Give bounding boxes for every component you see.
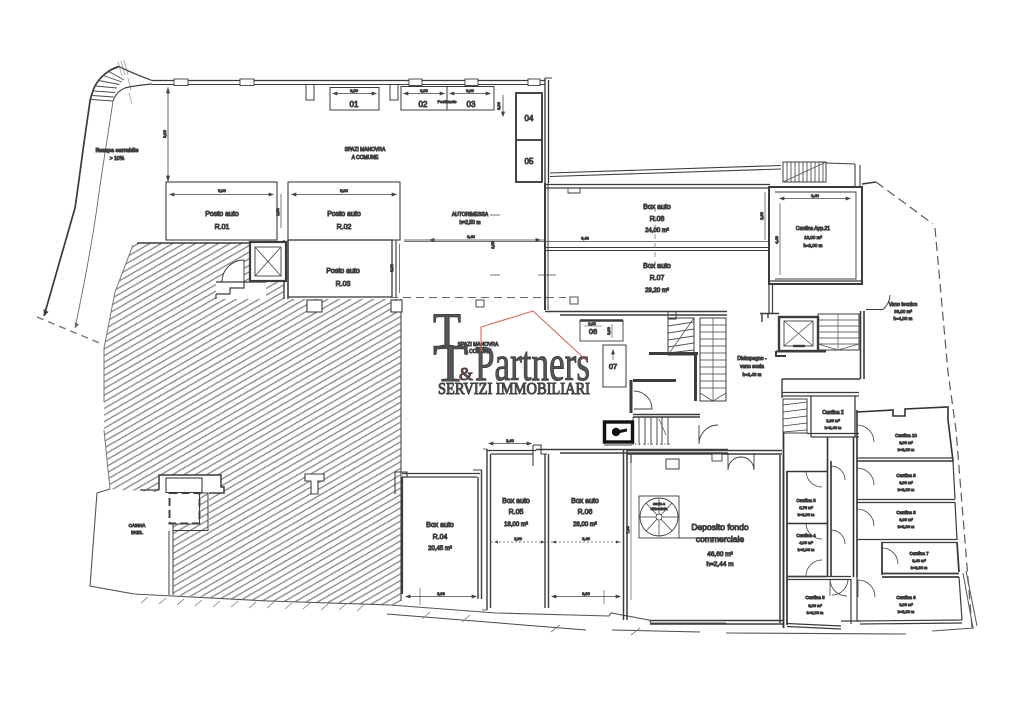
svg-text:6,40: 6,40 [581, 236, 590, 241]
svg-text:Rampa carrabile: Rampa carrabile [96, 148, 139, 154]
svg-text:R.02: R.02 [337, 224, 352, 231]
svg-text:Box auto: Box auto [643, 204, 671, 211]
svg-text:6,40: 6,40 [467, 234, 476, 239]
svg-text:h=2,40 m: h=2,40 m [825, 425, 842, 430]
svg-text:R.04: R.04 [433, 534, 448, 541]
svg-text:6,00 m²: 6,00 m² [899, 602, 913, 607]
svg-text:36,00 m²: 36,00 m² [894, 309, 912, 314]
svg-text:6,00 m²: 6,00 m² [899, 480, 913, 485]
svg-text:AUTORIMESSA: AUTORIMESSA [452, 212, 489, 218]
svg-text:Posti moto: Posti moto [438, 99, 458, 104]
svg-text:> 10%: > 10% [110, 156, 125, 162]
svg-text:5,00: 5,00 [340, 188, 349, 193]
svg-text:2,00: 2,00 [588, 321, 597, 326]
svg-text:Cantina 7: Cantina 7 [909, 551, 929, 556]
svg-text:SERVIZI IMMOBILIARI: SERVIZI IMMOBILIARI [438, 379, 590, 398]
svg-text:h=2,00 m: h=2,00 m [798, 547, 815, 552]
svg-text:4,00 m²: 4,00 m² [799, 540, 813, 545]
svg-text:Cantina 8: Cantina 8 [896, 510, 916, 515]
svg-text:Posto auto: Posto auto [327, 211, 361, 218]
svg-text:24,00 m²: 24,00 m² [645, 228, 669, 234]
svg-text:2,30 m²: 2,30 m² [826, 418, 840, 423]
svg-text:h=2,00 m: h=2,00 m [807, 610, 824, 615]
svg-text:Box auto: Box auto [426, 522, 454, 529]
svg-text:R.08: R.08 [650, 216, 665, 223]
svg-text:Cantina 4: Cantina 4 [796, 533, 816, 538]
svg-text:8,00 m²: 8,00 m² [899, 440, 913, 445]
svg-text:Cantina 5: Cantina 5 [805, 595, 825, 600]
svg-text:4,40: 4,40 [774, 235, 779, 244]
svg-text:h=2,44 m: h=2,44 m [706, 561, 733, 568]
svg-text:h=2,00 m: h=2,00 m [898, 487, 915, 492]
svg-text:SPAZI MANOVRA: SPAZI MANOVRA [345, 147, 386, 153]
svg-text:03: 03 [467, 100, 476, 109]
svg-text:5,00: 5,00 [389, 263, 394, 272]
svg-text:3,00: 3,00 [350, 88, 359, 93]
svg-text:3,00: 3,00 [582, 591, 591, 596]
svg-text:scala a: scala a [653, 502, 666, 506]
svg-text:CABINA: CABINA [129, 523, 146, 528]
svg-text:h=2,00 m: h=2,00 m [804, 243, 823, 248]
svg-text:Deposito fondo: Deposito fondo [691, 522, 748, 532]
svg-text:5,00: 5,00 [218, 188, 227, 193]
svg-text:chiocciola: chiocciola [651, 507, 669, 511]
svg-text:Cantina App.21: Cantina App.21 [796, 226, 830, 232]
svg-text:h=2,00 m: h=2,00 m [798, 512, 815, 517]
svg-text:6,00 m²: 6,00 m² [808, 603, 822, 608]
svg-text:Cantina 9: Cantina 9 [896, 473, 916, 478]
svg-text:28,00 m²: 28,00 m² [573, 522, 597, 528]
svg-text:h=2,60 m: h=2,60 m [911, 565, 928, 570]
svg-text:3,40: 3,40 [811, 193, 820, 198]
svg-text:Posto auto: Posto auto [326, 268, 360, 275]
svg-text:20,45 m²: 20,45 m² [428, 546, 452, 552]
svg-text:h=4,03 m: h=4,03 m [894, 316, 913, 321]
svg-text:Box auto: Box auto [643, 263, 671, 270]
svg-text:R.03: R.03 [336, 281, 351, 288]
svg-text:01: 01 [350, 100, 359, 109]
svg-text:Cantina 3: Cantina 3 [796, 498, 816, 503]
svg-text:2,05: 2,05 [490, 240, 495, 249]
svg-text:h=2,43 m: h=2,43 m [743, 372, 762, 377]
svg-text:3,00: 3,00 [606, 326, 611, 335]
svg-text:2,40: 2,40 [506, 438, 515, 443]
svg-text:29,20 m²: 29,20 m² [645, 288, 669, 294]
svg-text:2,60: 2,60 [759, 211, 764, 220]
svg-text:Cantina 2: Cantina 2 [822, 410, 844, 416]
svg-text:3,00: 3,00 [496, 101, 501, 110]
svg-text:vano scala: vano scala [740, 364, 764, 370]
svg-text:02: 02 [419, 100, 428, 109]
svg-text:Vano tecnico: Vano tecnico [889, 302, 918, 308]
svg-text:2,00: 2,00 [514, 536, 523, 541]
svg-text:3,00: 3,00 [466, 88, 475, 93]
svg-text:5,00: 5,00 [162, 129, 167, 138]
svg-text:3,40 m²: 3,40 m² [912, 558, 926, 563]
svg-text:46,60 m²: 46,60 m² [707, 551, 733, 558]
svg-text:h=2,50 m: h=2,50 m [460, 220, 481, 226]
svg-text:6,00 m²: 6,00 m² [899, 517, 913, 522]
svg-text:R.06: R.06 [578, 509, 593, 516]
svg-text:Cantina 10: Cantina 10 [895, 433, 917, 438]
svg-text:h=2,00 m: h=2,00 m [898, 524, 915, 529]
svg-text:0,75 m²: 0,75 m² [799, 505, 813, 510]
svg-text:3,40: 3,40 [582, 536, 591, 541]
svg-text:18,00 m²: 18,00 m² [504, 522, 528, 528]
svg-text:06: 06 [589, 327, 597, 336]
svg-text:R.07: R.07 [650, 275, 665, 282]
svg-text:Box auto: Box auto [502, 498, 530, 505]
svg-text:18,00 m²: 18,00 m² [804, 235, 822, 240]
svg-text:A COMUNE: A COMUNE [352, 155, 379, 161]
svg-text:R.01: R.01 [215, 224, 230, 231]
svg-text:05: 05 [525, 157, 534, 166]
svg-text:04: 04 [525, 114, 534, 123]
svg-text:3,00: 3,00 [437, 591, 446, 596]
svg-text:h=2,60 m: h=2,60 m [898, 609, 915, 614]
svg-text:07: 07 [609, 362, 617, 371]
svg-text:Disimpegno -: Disimpegno - [737, 356, 767, 362]
svg-text:commerciale: commerciale [696, 534, 744, 544]
svg-text:7,36: 7,36 [625, 525, 630, 534]
svg-text:3,00: 3,00 [420, 88, 429, 93]
svg-text:ENEL: ENEL [131, 530, 143, 535]
svg-text:Posto auto: Posto auto [205, 211, 239, 218]
svg-text:R.05: R.05 [509, 509, 524, 516]
svg-text:h=2,00 m: h=2,00 m [898, 447, 915, 452]
svg-text:Box auto: Box auto [571, 498, 599, 505]
svg-text:Cantina 6: Cantina 6 [896, 595, 916, 600]
svg-text:2,50: 2,50 [275, 207, 280, 216]
